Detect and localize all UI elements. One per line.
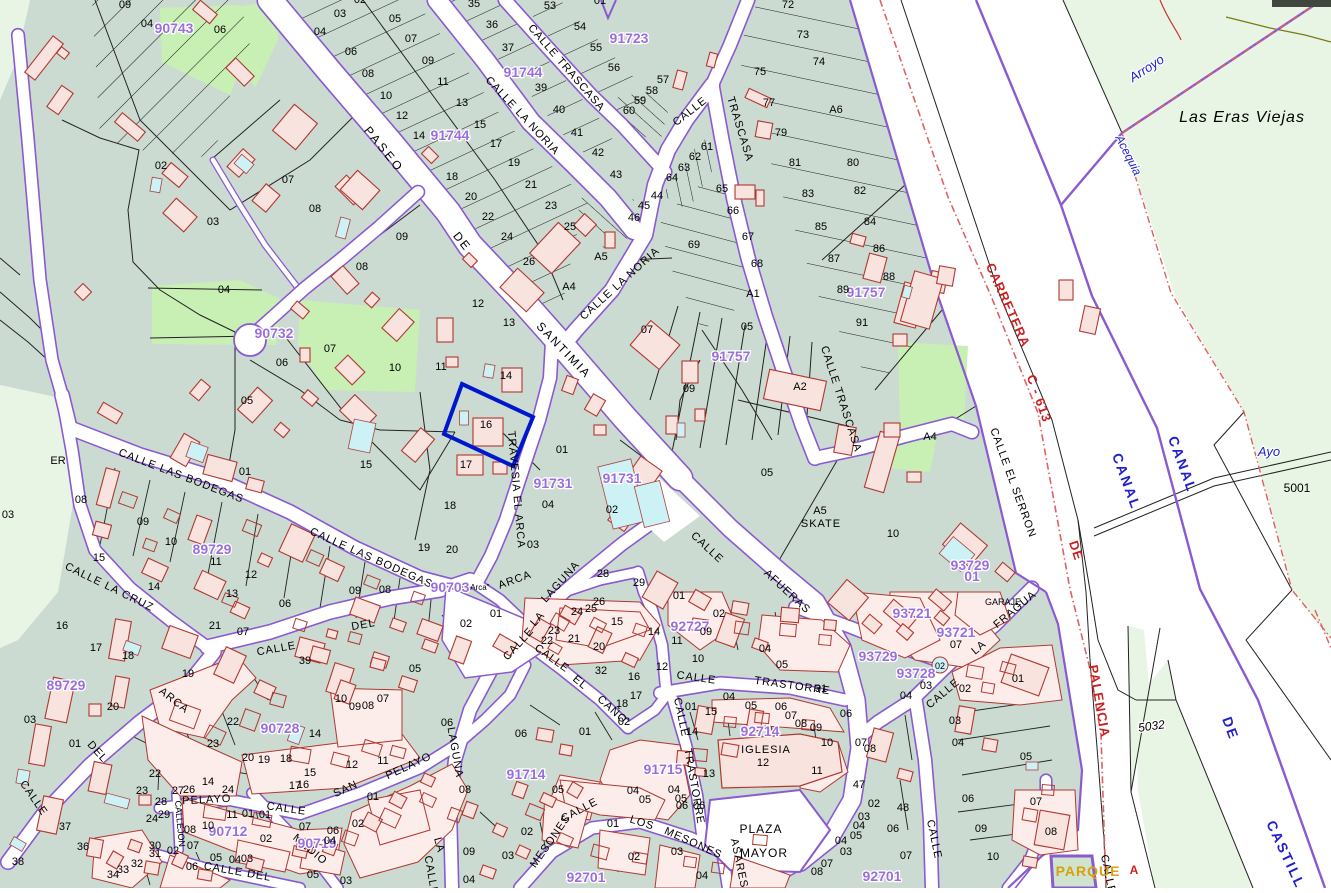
svg-text:39: 39 [535, 82, 547, 94]
svg-text:06: 06 [186, 861, 198, 873]
svg-text:91715: 91715 [644, 761, 683, 777]
svg-text:03: 03 [949, 715, 961, 727]
svg-text:79: 79 [775, 127, 787, 139]
svg-text:38: 38 [12, 856, 24, 868]
svg-text:03: 03 [24, 714, 36, 726]
svg-text:60: 60 [623, 105, 635, 117]
svg-text:IGLESIA: IGLESIA [741, 744, 791, 756]
svg-text:05: 05 [552, 784, 564, 796]
svg-text:18: 18 [616, 698, 628, 710]
svg-text:19: 19 [182, 668, 194, 680]
svg-text:91723: 91723 [610, 30, 649, 46]
svg-text:07: 07 [950, 639, 962, 651]
svg-text:03: 03 [207, 216, 219, 228]
svg-text:08: 08 [356, 261, 368, 273]
svg-text:17: 17 [460, 459, 472, 471]
svg-text:37: 37 [502, 42, 514, 54]
svg-text:20: 20 [446, 544, 458, 556]
svg-text:09: 09 [683, 383, 695, 395]
svg-text:06: 06 [962, 793, 974, 805]
svg-text:05: 05 [776, 659, 788, 671]
svg-text:31: 31 [815, 683, 827, 695]
svg-text:02: 02 [260, 833, 272, 845]
svg-text:08: 08 [75, 494, 87, 506]
svg-text:69: 69 [688, 239, 700, 251]
svg-text:10: 10 [887, 528, 899, 540]
svg-text:08: 08 [811, 866, 823, 878]
svg-text:44: 44 [651, 190, 663, 202]
svg-text:91757: 91757 [847, 284, 886, 300]
svg-text:01: 01 [594, 0, 606, 7]
svg-text:28: 28 [155, 796, 167, 808]
svg-text:29: 29 [633, 577, 645, 589]
svg-text:05: 05 [389, 13, 401, 25]
svg-text:14: 14 [309, 728, 321, 740]
svg-text:02: 02 [521, 826, 533, 838]
svg-text:24: 24 [571, 606, 583, 618]
svg-text:42: 42 [592, 147, 604, 159]
svg-text:61: 61 [701, 141, 713, 153]
svg-text:67: 67 [742, 231, 754, 243]
svg-text:75: 75 [754, 66, 766, 78]
svg-text:91731: 91731 [603, 470, 642, 486]
svg-text:12: 12 [656, 661, 668, 673]
svg-text:05: 05 [307, 869, 319, 881]
svg-text:02: 02 [628, 851, 640, 863]
svg-text:03: 03 [920, 680, 932, 692]
svg-text:03: 03 [527, 539, 539, 551]
svg-text:04: 04 [723, 691, 735, 703]
svg-text:22: 22 [149, 768, 161, 780]
svg-text:11: 11 [811, 765, 822, 777]
svg-text:14: 14 [500, 370, 512, 382]
svg-text:03: 03 [334, 8, 346, 20]
svg-text:02: 02 [354, 0, 366, 6]
svg-text:06: 06 [214, 24, 226, 36]
svg-text:20: 20 [242, 752, 254, 764]
svg-text:01: 01 [242, 808, 254, 820]
svg-text:92714: 92714 [741, 723, 780, 739]
svg-text:04: 04 [141, 18, 153, 30]
svg-text:ER: ER [50, 455, 65, 467]
svg-text:10: 10 [335, 693, 347, 705]
svg-text:11: 11 [226, 809, 237, 821]
svg-text:09: 09 [463, 846, 475, 858]
svg-text:02: 02 [460, 618, 472, 630]
svg-text:13: 13 [226, 588, 238, 600]
svg-text:06: 06 [441, 717, 453, 729]
svg-text:32: 32 [595, 665, 607, 677]
svg-text:27: 27 [172, 785, 184, 797]
svg-text:04: 04 [542, 499, 554, 511]
svg-text:05: 05 [745, 700, 757, 712]
svg-text:5001: 5001 [1284, 481, 1311, 495]
svg-text:82: 82 [854, 185, 866, 197]
svg-text:24: 24 [222, 784, 234, 796]
svg-text:11: 11 [671, 635, 682, 647]
svg-text:07: 07 [187, 840, 199, 852]
svg-text:11: 11 [435, 361, 446, 373]
svg-text:31: 31 [149, 848, 161, 860]
svg-text:04: 04 [696, 870, 708, 882]
svg-text:36: 36 [486, 19, 498, 31]
svg-text:09: 09 [349, 585, 361, 597]
svg-text:02: 02 [868, 798, 880, 810]
svg-text:08: 08 [184, 824, 196, 836]
svg-text:Las Eras Viejas: Las Eras Viejas [1179, 109, 1305, 126]
svg-text:08: 08 [309, 203, 321, 215]
svg-text:07: 07 [405, 33, 417, 45]
svg-text:01: 01 [367, 791, 379, 803]
svg-text:01: 01 [579, 726, 591, 738]
svg-text:63: 63 [678, 162, 690, 174]
svg-text:07: 07 [1030, 796, 1042, 808]
svg-text:09: 09 [422, 55, 434, 67]
svg-text:01: 01 [69, 738, 81, 750]
svg-text:73: 73 [797, 29, 809, 41]
svg-text:21: 21 [525, 179, 537, 191]
svg-text:02: 02 [959, 683, 971, 695]
svg-text:10: 10 [380, 90, 392, 102]
svg-text:08: 08 [864, 743, 876, 755]
svg-text:01: 01 [1012, 673, 1024, 685]
svg-text:01: 01 [239, 466, 251, 478]
svg-text:02: 02 [352, 818, 364, 830]
svg-text:04: 04 [627, 785, 639, 797]
svg-text:19: 19 [258, 754, 270, 766]
svg-text:16: 16 [297, 779, 309, 791]
svg-text:GARAJE: GARAJE [985, 597, 1021, 607]
svg-text:23: 23 [207, 738, 219, 750]
svg-text:03: 03 [340, 875, 352, 887]
svg-text:14: 14 [648, 626, 660, 638]
svg-text:93728: 93728 [897, 665, 936, 681]
svg-text:90743: 90743 [155, 20, 194, 36]
svg-text:PLAZA: PLAZA [739, 822, 782, 836]
svg-text:05: 05 [741, 321, 753, 333]
svg-text:86: 86 [873, 243, 885, 255]
svg-text:10: 10 [165, 536, 177, 548]
svg-text:06: 06 [840, 708, 852, 720]
svg-text:40: 40 [553, 104, 565, 116]
svg-text:91744: 91744 [504, 64, 543, 80]
svg-text:A2: A2 [793, 381, 806, 393]
svg-text:15: 15 [705, 706, 717, 718]
svg-text:11: 11 [377, 755, 388, 767]
svg-text:08: 08 [795, 718, 807, 730]
svg-text:91: 91 [856, 317, 868, 329]
svg-text:32: 32 [131, 858, 143, 870]
svg-text:14: 14 [686, 726, 698, 738]
svg-text:41: 41 [571, 127, 583, 139]
svg-text:06: 06 [515, 728, 527, 740]
svg-text:12: 12 [346, 759, 358, 771]
svg-text:06: 06 [279, 598, 291, 610]
svg-text:08: 08 [379, 584, 391, 596]
svg-text:81: 81 [789, 157, 801, 169]
svg-text:91714: 91714 [507, 766, 546, 782]
svg-text:14: 14 [148, 581, 160, 593]
svg-text:08: 08 [362, 68, 374, 80]
svg-text:07: 07 [377, 693, 389, 705]
svg-text:15: 15 [360, 459, 372, 471]
svg-text:64: 64 [666, 172, 678, 184]
svg-text:A: A [1130, 863, 1139, 877]
svg-text:13: 13 [703, 768, 715, 780]
svg-text:05: 05 [210, 852, 222, 864]
svg-text:01: 01 [259, 809, 271, 821]
svg-text:09: 09 [396, 231, 408, 243]
svg-text:10: 10 [987, 851, 999, 863]
svg-text:26: 26 [523, 256, 535, 268]
svg-text:21: 21 [209, 620, 221, 632]
svg-text:05: 05 [761, 467, 773, 479]
svg-text:89: 89 [837, 284, 849, 296]
svg-text:18: 18 [446, 171, 458, 183]
svg-text:18: 18 [122, 650, 134, 662]
svg-text:15: 15 [611, 616, 623, 628]
svg-text:92701: 92701 [863, 868, 902, 884]
svg-text:19: 19 [508, 157, 520, 169]
svg-text:21: 21 [568, 633, 580, 645]
svg-text:47: 47 [853, 779, 865, 791]
svg-text:02: 02 [935, 661, 945, 671]
svg-text:55: 55 [590, 42, 602, 54]
svg-text:39: 39 [299, 655, 311, 667]
svg-text:05: 05 [241, 395, 253, 407]
svg-text:11: 11 [437, 76, 448, 88]
svg-text:13: 13 [503, 317, 515, 329]
svg-text:85: 85 [815, 221, 827, 233]
svg-text:04: 04 [314, 26, 326, 38]
svg-text:06: 06 [676, 800, 688, 812]
svg-text:03: 03 [502, 850, 514, 862]
svg-text:09: 09 [119, 0, 131, 11]
svg-text:91757: 91757 [712, 348, 751, 364]
svg-text:02: 02 [167, 845, 179, 857]
svg-text:03: 03 [241, 853, 253, 865]
svg-text:02: 02 [618, 716, 630, 728]
svg-text:09: 09 [975, 823, 987, 835]
svg-text:04: 04 [229, 854, 241, 866]
svg-text:35: 35 [468, 0, 480, 10]
svg-text:57: 57 [657, 74, 669, 86]
svg-text:06: 06 [327, 825, 339, 837]
svg-text:20: 20 [107, 701, 119, 713]
svg-text:01: 01 [685, 701, 697, 713]
svg-text:23: 23 [136, 785, 148, 797]
svg-text:22: 22 [541, 635, 553, 647]
svg-text:13: 13 [456, 97, 468, 109]
svg-text:15: 15 [474, 119, 486, 131]
svg-text:91731: 91731 [534, 475, 573, 491]
svg-text:07: 07 [324, 343, 336, 355]
svg-text:16: 16 [480, 419, 492, 431]
svg-text:18: 18 [280, 753, 292, 765]
svg-text:93729: 93729 [859, 648, 898, 664]
svg-text:05: 05 [639, 794, 651, 806]
svg-text:15: 15 [93, 552, 105, 564]
svg-text:SKATE: SKATE [801, 518, 841, 530]
svg-text:07: 07 [641, 324, 653, 336]
svg-text:28: 28 [597, 568, 609, 580]
svg-text:15: 15 [304, 767, 316, 779]
svg-text:48: 48 [897, 802, 909, 814]
svg-text:MAYOR: MAYOR [740, 846, 788, 860]
svg-text:11: 11 [210, 556, 221, 568]
svg-text:20: 20 [593, 641, 605, 653]
svg-text:77: 77 [763, 97, 775, 109]
svg-text:A6: A6 [829, 104, 842, 116]
svg-text:74: 74 [813, 56, 825, 68]
svg-text:10: 10 [692, 653, 704, 665]
svg-text:09: 09 [137, 516, 149, 528]
svg-text:18: 18 [444, 500, 456, 512]
svg-text:03: 03 [840, 846, 852, 858]
svg-text:01: 01 [673, 590, 685, 602]
svg-text:90728: 90728 [261, 720, 300, 736]
svg-text:04: 04 [759, 643, 771, 655]
svg-text:06: 06 [345, 46, 357, 58]
svg-text:91744: 91744 [431, 127, 470, 143]
svg-text:A4: A4 [562, 281, 575, 293]
svg-text:24: 24 [501, 231, 513, 243]
svg-text:22: 22 [482, 211, 494, 223]
svg-text:03: 03 [671, 846, 683, 858]
svg-text:84: 84 [864, 216, 876, 228]
svg-text:56: 56 [608, 62, 620, 74]
svg-text:14: 14 [202, 776, 214, 788]
svg-text:12: 12 [245, 569, 257, 581]
svg-text:Ayo: Ayo [1257, 444, 1280, 459]
svg-text:34: 34 [107, 869, 119, 881]
svg-text:17: 17 [490, 138, 502, 150]
svg-text:62: 62 [689, 151, 701, 163]
svg-text:02: 02 [713, 608, 725, 620]
svg-text:23: 23 [545, 200, 557, 212]
svg-text:16: 16 [628, 671, 640, 683]
svg-text:08: 08 [1045, 826, 1057, 838]
svg-text:01: 01 [964, 568, 980, 584]
svg-text:02: 02 [606, 504, 618, 516]
svg-text:90712: 90712 [209, 823, 248, 839]
svg-text:53: 53 [544, 0, 556, 12]
svg-text:05: 05 [1020, 751, 1032, 763]
svg-text:A5: A5 [594, 251, 607, 263]
svg-text:24: 24 [146, 813, 158, 825]
svg-text:72: 72 [782, 0, 794, 11]
svg-text:14: 14 [413, 130, 425, 142]
svg-text:93721: 93721 [937, 624, 976, 640]
svg-text:04: 04 [218, 284, 230, 296]
svg-text:59: 59 [634, 95, 646, 107]
svg-text:06: 06 [693, 800, 705, 812]
svg-text:22: 22 [227, 716, 239, 728]
svg-text:12: 12 [757, 757, 769, 769]
svg-text:05: 05 [850, 830, 862, 842]
svg-text:06: 06 [276, 357, 288, 369]
svg-text:26: 26 [183, 784, 195, 796]
svg-text:29: 29 [158, 809, 170, 821]
svg-text:12: 12 [396, 110, 408, 122]
svg-text:92701: 92701 [567, 869, 606, 885]
svg-text:09: 09 [810, 722, 822, 734]
svg-text:07: 07 [282, 174, 294, 186]
svg-text:88: 88 [883, 271, 895, 283]
svg-text:08: 08 [459, 784, 471, 796]
svg-text:17: 17 [630, 690, 642, 702]
svg-text:A4: A4 [923, 431, 936, 443]
svg-text:36: 36 [77, 841, 89, 853]
svg-text:89729: 89729 [193, 541, 232, 557]
svg-text:09: 09 [349, 701, 361, 713]
svg-text:80: 80 [847, 157, 859, 169]
svg-text:01: 01 [607, 818, 619, 830]
svg-text:87: 87 [828, 253, 840, 265]
svg-text:25: 25 [564, 221, 576, 233]
svg-text:66: 66 [727, 205, 739, 217]
svg-text:68: 68 [751, 258, 763, 270]
svg-text:02: 02 [155, 160, 167, 172]
svg-text:10: 10 [389, 362, 401, 374]
svg-text:93721: 93721 [893, 605, 932, 621]
svg-text:45: 45 [638, 200, 650, 212]
svg-text:26: 26 [593, 596, 605, 608]
svg-text:07: 07 [299, 821, 311, 833]
svg-text:65: 65 [716, 183, 728, 195]
svg-text:A1: A1 [746, 288, 759, 300]
svg-text:01: 01 [490, 608, 502, 620]
svg-text:06: 06 [887, 823, 899, 835]
svg-text:17: 17 [90, 642, 102, 654]
svg-text:20: 20 [465, 191, 477, 203]
svg-text:89729: 89729 [47, 677, 86, 693]
svg-text:03: 03 [2, 509, 14, 521]
svg-text:83: 83 [802, 188, 814, 200]
svg-text:04: 04 [952, 737, 964, 749]
svg-text:05: 05 [409, 663, 421, 675]
svg-text:08: 08 [362, 700, 374, 712]
svg-text:07: 07 [900, 850, 912, 862]
svg-text:01: 01 [556, 444, 568, 456]
svg-text:37: 37 [59, 821, 71, 833]
svg-text:10: 10 [821, 737, 833, 749]
svg-text:07: 07 [237, 626, 249, 638]
svg-text:16: 16 [56, 620, 68, 632]
svg-text:04: 04 [463, 874, 475, 886]
svg-text:09: 09 [700, 626, 712, 638]
svg-text:PARQUE: PARQUE [1056, 863, 1121, 879]
svg-text:A5: A5 [813, 505, 826, 517]
svg-text:43: 43 [610, 169, 622, 181]
svg-text:19: 19 [418, 542, 430, 554]
svg-text:90732: 90732 [255, 325, 294, 341]
svg-text:12: 12 [472, 298, 484, 310]
svg-text:54: 54 [574, 21, 586, 33]
svg-text:04: 04 [900, 690, 912, 702]
svg-text:10: 10 [202, 820, 214, 832]
svg-text:46: 46 [628, 212, 640, 224]
svg-text:58: 58 [646, 85, 658, 97]
svg-text:90703: 90703 [431, 579, 470, 595]
